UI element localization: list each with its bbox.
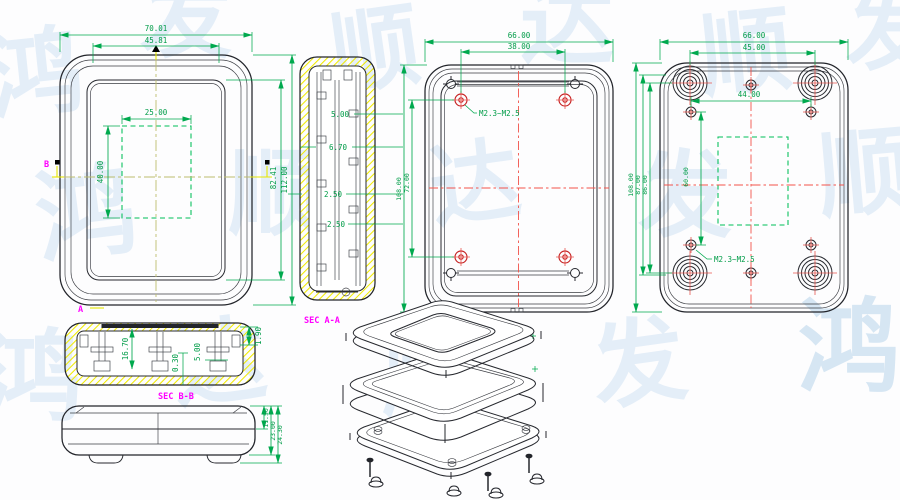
- dim-front-width-inner: 45.81: [145, 36, 168, 45]
- dim-sec-bb-lip: 1.90: [254, 326, 263, 345]
- front-view: B A 70.01 45.81 25.00 40.00: [40, 16, 300, 316]
- section-bb-cavity: [77, 331, 243, 376]
- dim-bi-hole-spacing-x: 38.00: [508, 42, 531, 51]
- corner-screw-posts: [443, 76, 583, 281]
- section-b-square-left: [55, 160, 60, 165]
- back-inside-view: 66.00 38.00 108.00 72.00 M2.3~M2.5: [395, 25, 630, 325]
- dim-bo-mid-spacing-y: 60.00: [682, 167, 690, 187]
- dim-sec-aa-top: 5.00: [331, 110, 350, 119]
- window-cutout-dashed: [122, 126, 191, 218]
- dim-front-width-outer: 70.01: [145, 24, 168, 33]
- dim-sec-bb-depth: 16.70: [121, 337, 130, 360]
- top-cover: [346, 301, 541, 378]
- dim-sec-bb-gap: 0.30: [171, 353, 180, 372]
- dim-bi-width-outer: 66.00: [508, 31, 531, 40]
- rubber-feet: [369, 474, 544, 498]
- cad-drawing-sheet: 鸿 发 顺 达 顺 发 鸿 顺 达 发 顺 鸿 达 顺 发 鸿: [0, 0, 900, 500]
- section-bb-view: 16.70 0.30 5.00 1.90 SEC B-B: [40, 305, 305, 405]
- side-feet: [89, 455, 241, 463]
- dim-sec-aa-rib: 6.70: [329, 143, 348, 152]
- dim-front-height-inner: 82.41: [269, 167, 278, 190]
- dim-bo-width-outer: 66.00: [743, 31, 766, 40]
- dim-bi-hole-spacing-y: 72.00: [403, 173, 411, 193]
- section-aa-view: 5.00 6.70 2.50 2.50 SEC A-A: [288, 40, 410, 335]
- section-b-square-right: [265, 160, 270, 165]
- side-view: 11.50 23.00 24.30: [40, 398, 305, 498]
- exploded-view: [330, 293, 650, 500]
- thread-callout-bi: M2.3~M2.5: [479, 109, 520, 118]
- dim-window-width: 25.00: [145, 108, 168, 117]
- window-projection-dashed: [718, 137, 788, 225]
- thread-callout-bo: M2.3~M2.5: [714, 255, 755, 264]
- dim-bo-feet-spacing-x: 45.00: [743, 43, 766, 52]
- red-centerlines: [429, 71, 609, 307]
- dim-sec-aa-wall1: 2.50: [324, 190, 343, 199]
- side-body: [62, 406, 255, 455]
- dim-side-total: 24.30: [276, 425, 284, 445]
- section-b-label-left: B: [44, 160, 49, 170]
- dim-window-height: 40.00: [96, 160, 105, 183]
- side-dimensions: 11.50 23.00 24.30: [240, 406, 284, 463]
- dim-bo-height-b: 86.00: [641, 175, 649, 195]
- dim-sec-aa-wall2: 2.50: [327, 220, 346, 229]
- section-b-markers: B: [44, 160, 272, 177]
- dim-bo-mid-spacing-x: 44.00: [738, 90, 761, 99]
- centerlines: [64, 60, 250, 302]
- dim-sec-bb-boss: 5.00: [193, 342, 202, 361]
- dim-bi-height-outer: 108.00: [395, 177, 403, 201]
- section-bb-top-slot: [102, 325, 218, 328]
- back-outside-view: 66.00 45.00 44.00 60.00 108.00 87.00 8: [628, 25, 890, 325]
